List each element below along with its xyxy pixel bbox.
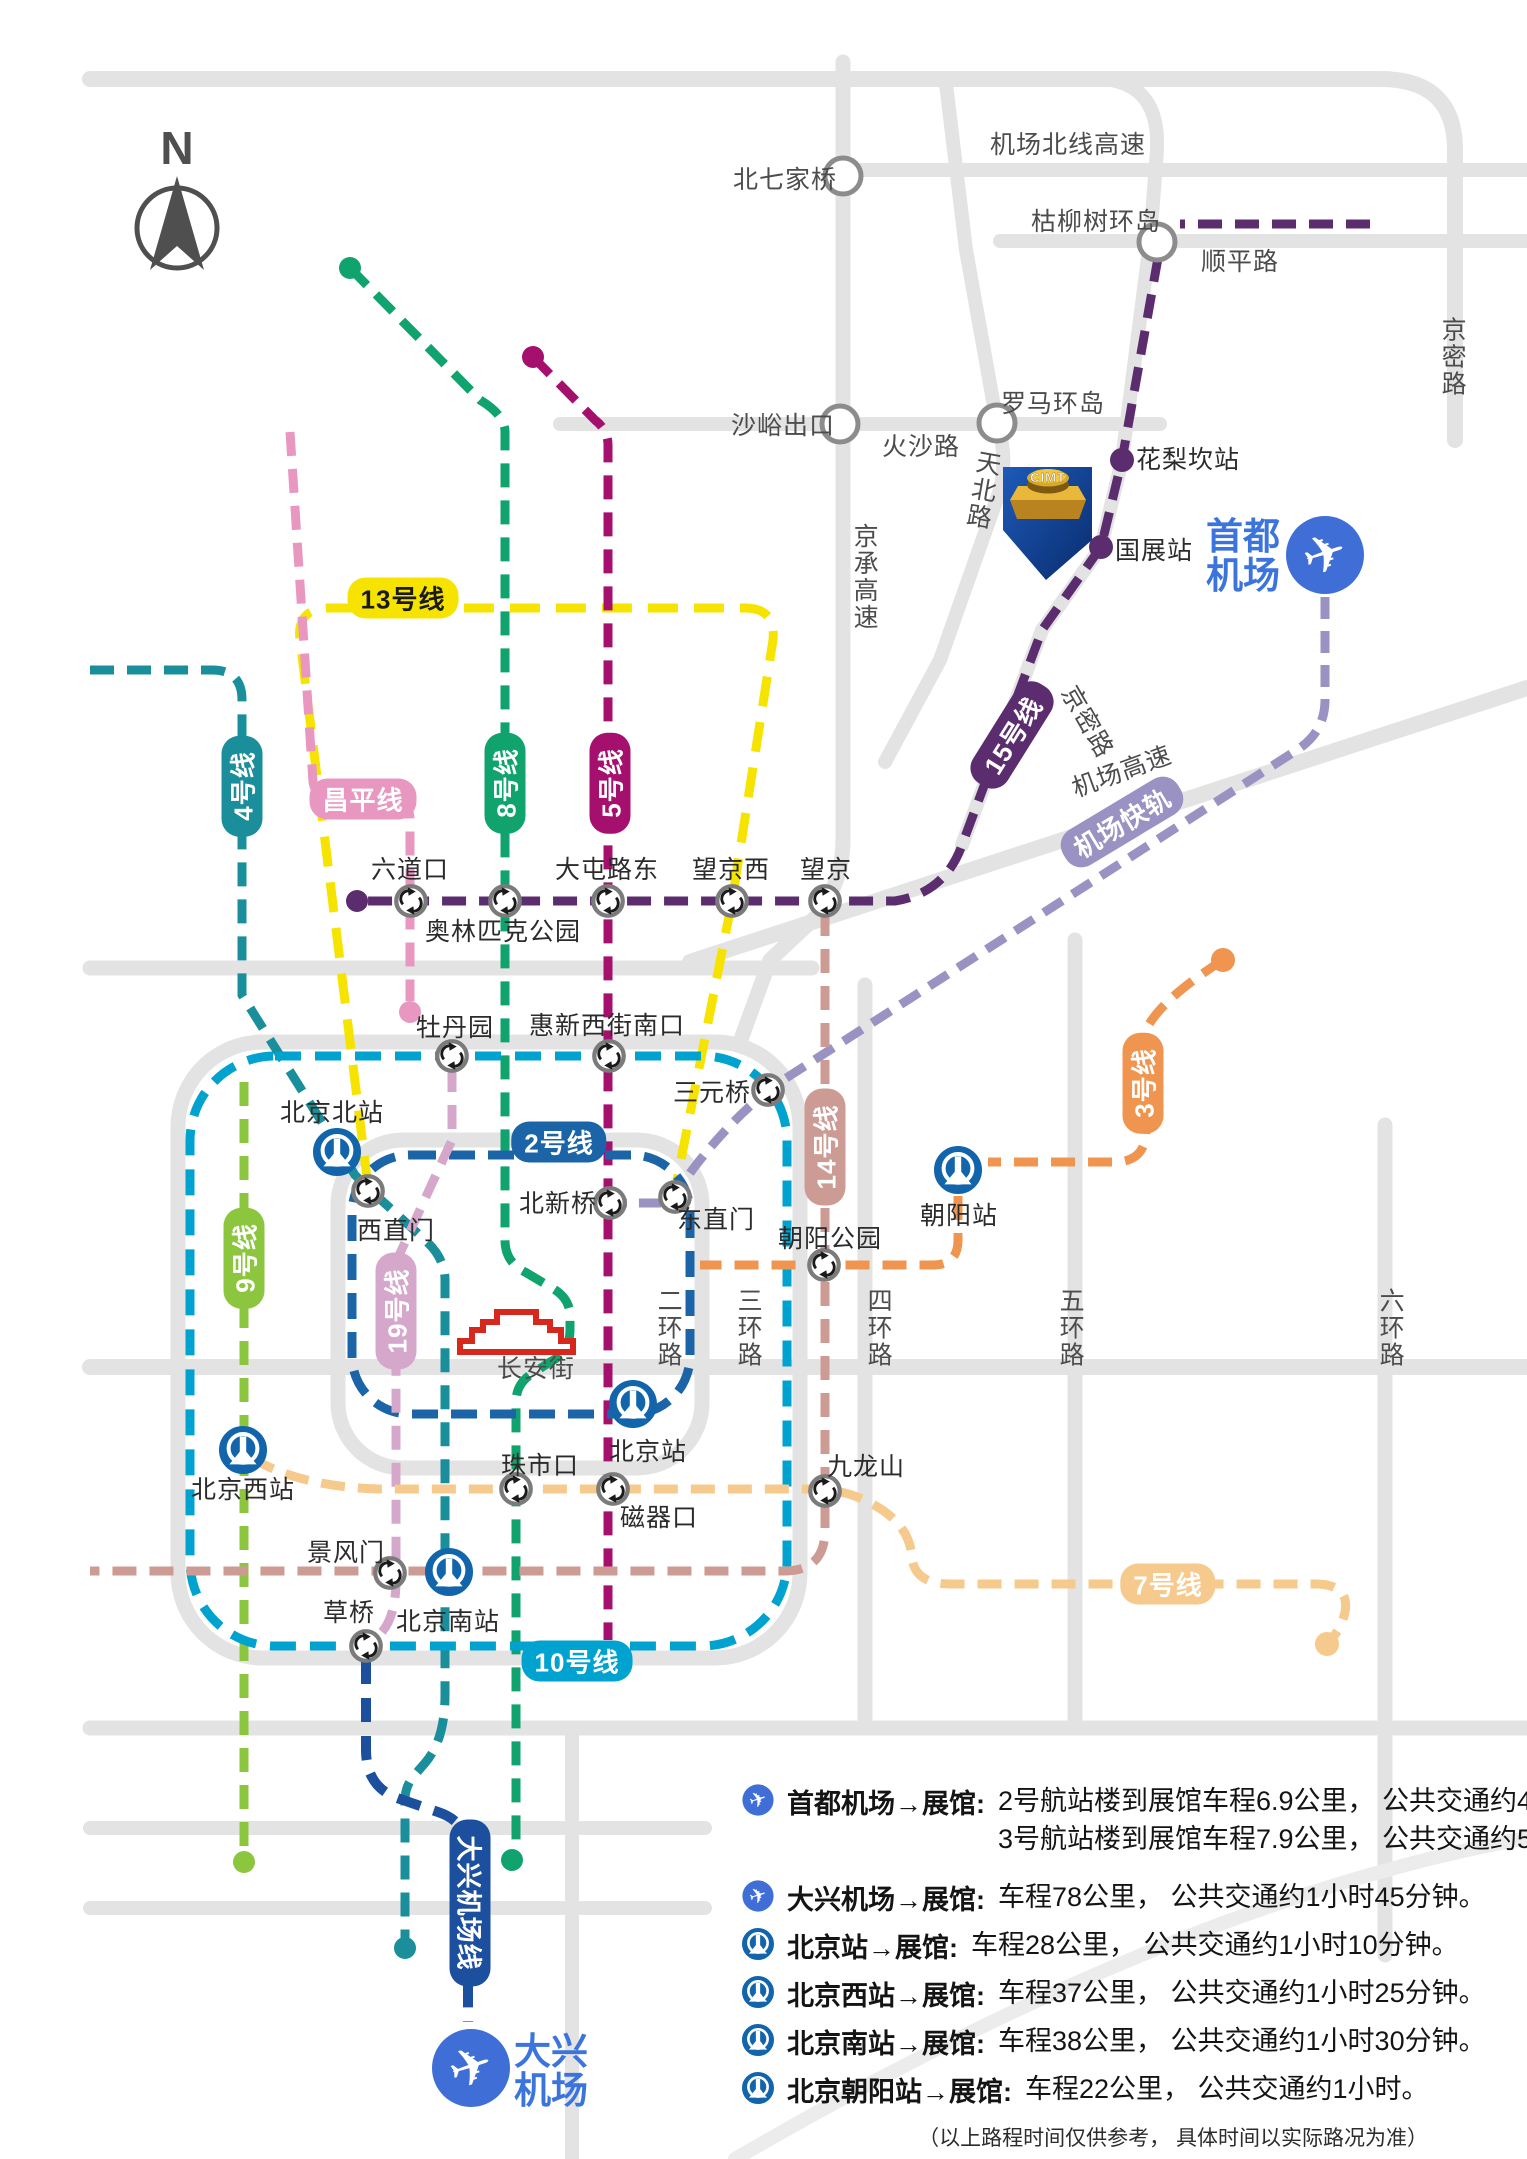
station-label-huixinxijie: 惠新西街南口 (529, 1013, 685, 1039)
station-label-sanyuanqiao: 三元桥 (673, 1080, 751, 1106)
cimt-landmark: CIMT (1003, 467, 1092, 580)
legend-row-beijing-station: 北京站→展馆: 车程28公里， 公共交通约1小时10分钟。 (742, 1926, 1459, 1965)
station-label-beijingxi: 北京西站 (191, 1477, 295, 1503)
line5-north-dot (522, 346, 544, 368)
line-terminus-dots (233, 257, 1339, 1959)
station-label-liudaokou: 六道口 (371, 857, 449, 883)
line-pill-7: 7号线 (1120, 1564, 1215, 1605)
line-pill-5: 5号线 (590, 732, 631, 833)
legend-desc: 2号航站楼到展馆车程6.9公里， 公共交通约45分钟。 3号航站楼到展馆车程7.… (998, 1782, 1527, 1859)
rail-icon (742, 2024, 774, 2056)
legend-row-beijingnan-station: 北京南站→展馆: 车程38公里， 公共交通约1小时30分钟。 (742, 2022, 1486, 2061)
station-label-beijingnan: 北京南站 (396, 1609, 500, 1635)
road-label-airport-north-expwy: 机场北线高速 (990, 132, 1146, 158)
station-label-jingfengmen: 景风门 (307, 1540, 385, 1566)
daxing-airport-name: 大兴 机场 (514, 2032, 588, 2110)
daxing-airport-name-line1: 大兴 (514, 2032, 588, 2071)
road-label-ring3: 三环路 (735, 1288, 761, 1369)
legend-desc: 车程37公里， 公共交通约1小时25分钟。 (998, 1974, 1486, 2012)
capital-airport-icon (1286, 516, 1364, 594)
station-label-olympic: 奥林匹克公园 (425, 919, 581, 945)
transfer-icon-xizhimen (353, 1176, 382, 1205)
tiananmen-icon (460, 1312, 573, 1352)
rail-icon (742, 2072, 774, 2104)
daxing-airport-name-line2: 机场 (514, 2071, 588, 2110)
rail-icon-beijing (610, 1381, 656, 1427)
line-pill-4: 4号线 (222, 735, 263, 836)
legend-desc: 车程22公里， 公共交通约1小时。 (1025, 2070, 1429, 2108)
transfer-icon-ciqikou (598, 1474, 627, 1503)
capital-airport-name-line1: 首都 (1206, 517, 1280, 556)
road-label-shayu: 沙峪出口 (731, 413, 835, 439)
transfer-icon-olympic-park (490, 886, 519, 915)
line8-south-dot (501, 1849, 523, 1871)
station-label-zhushikou: 珠市口 (501, 1453, 579, 1479)
station-dot-hualikan (1110, 448, 1134, 472)
capital-airport-name-line2: 机场 (1206, 556, 1280, 595)
transfer-icon-beixinqiao (595, 1188, 624, 1217)
compass-n-letter: N (160, 121, 193, 175)
road-label-kuliushu: 枯柳树环岛 (1031, 209, 1161, 235)
cimt-logo-text: CIMT (1030, 470, 1066, 485)
legend-row-chaoyang-station: 北京朝阳站→展馆: 车程22公里， 公共交通约1小时。 (742, 2070, 1429, 2109)
cimt-base-front (1010, 500, 1086, 519)
legend-row-capital-airport: 首都机场→展馆: 2号航站楼到展馆车程6.9公里， 公共交通约45分钟。 3号航… (742, 1782, 1527, 1859)
road-label-beiqijiaqiao: 北七家桥 (733, 167, 837, 193)
line8-north-dot (339, 257, 361, 279)
transfer-icon-huixinxijie (594, 1041, 623, 1070)
rail-icon-beijingbei (314, 1129, 360, 1175)
plane-icon (742, 1880, 774, 1912)
line15-end-dot (346, 890, 368, 912)
legend-name: 北京西站→展馆: (787, 1974, 985, 2013)
rail-icon-chaoyang (935, 1147, 981, 1193)
transfer-icon-wangjingxi (717, 886, 746, 915)
legend-name: 首都机场→展馆: (787, 1782, 985, 1821)
legend-desc: 车程78公里， 公共交通约1小时45分钟。 (998, 1878, 1486, 1916)
line-pill-changping: 昌平线 (309, 779, 416, 820)
station-label-datunludong: 大屯路东 (555, 857, 659, 883)
line-pill-3: 3号线 (1123, 1032, 1164, 1133)
line7-end-dot (1315, 1632, 1339, 1656)
road-label-jingmi-top: 京密路 (1439, 317, 1465, 398)
station-label-beijing: 北京站 (609, 1439, 687, 1465)
line-pill-19: 19号线 (376, 1253, 417, 1370)
road-label-shunping: 顺平路 (1201, 249, 1279, 275)
station-label-mudanyuan: 牡丹园 (416, 1015, 494, 1041)
line-5-path (533, 357, 608, 1640)
line-pill-14: 14号线 (805, 1089, 846, 1206)
road-label-ring4: 四环路 (865, 1288, 891, 1369)
station-label-chaoyang-park: 朝阳公园 (778, 1226, 882, 1252)
station-label-beijingbei: 北京北站 (280, 1100, 384, 1126)
transfer-icon-caoqiao (351, 1631, 380, 1660)
line-pill-9: 9号线 (224, 1207, 265, 1308)
station-label-jiulongshan: 九龙山 (827, 1454, 905, 1480)
legend-name: 大兴机场→展馆: (787, 1878, 985, 1917)
transfer-stations (351, 886, 839, 1660)
capital-airport-name: 首都 机场 (1206, 517, 1280, 595)
legend-footer-note: （以上路程时间仅供参考， 具体时间以实际路况为准） (918, 2122, 1428, 2152)
rail-icon (742, 1928, 774, 1960)
legend-desc: 车程28公里， 公共交通约1小时10分钟。 (971, 1926, 1459, 1964)
line-pill-8: 8号线 (485, 732, 526, 833)
station-label-guozhan: 国展站 (1115, 538, 1193, 564)
station-label-hualikan: 花梨坎站 (1136, 447, 1240, 473)
station-label-wangjingxi: 望京西 (692, 857, 770, 883)
road-label-ring5: 五环路 (1057, 1288, 1083, 1369)
plane-icon (742, 1784, 774, 1816)
station-label-chaoyang: 朝阳站 (920, 1203, 998, 1229)
transfer-icon-mudanyuan (437, 1041, 466, 1070)
legend-desc: 车程38公里， 公共交通约1小时30分钟。 (998, 2022, 1486, 2060)
line3-end-dot (1211, 948, 1235, 972)
station-label-wangjing: 望京 (800, 857, 852, 883)
transfer-icon-wangjing (810, 886, 839, 915)
legend-desc-line2: 3号航站楼到展馆车程7.9公里， 公共交通约55分钟。 (998, 1820, 1527, 1858)
station-label-ciqikou: 磁器口 (620, 1505, 698, 1531)
line-pill-10: 10号线 (522, 1641, 633, 1682)
legend-name: 北京南站→展馆: (787, 2022, 985, 2061)
line-pill-13: 13号线 (348, 578, 459, 619)
legend-row-beijingxi-station: 北京西站→展馆: 车程37公里， 公共交通约1小时25分钟。 (742, 1974, 1486, 2013)
legend-name: 北京站→展馆: (787, 1926, 958, 1965)
transfer-icon-datunludong (593, 886, 622, 915)
legend-row-daxing-airport: 大兴机场→展馆: 车程78公里， 公共交通约1小时45分钟。 (742, 1878, 1486, 1917)
transfer-icon-chaoyang-park (809, 1250, 838, 1279)
compass (137, 176, 217, 270)
station-label-dongzhimen: 东直门 (677, 1207, 755, 1233)
legend-name: 北京朝阳站→展馆: (787, 2070, 1012, 2109)
line-pill-2: 2号线 (511, 1122, 606, 1163)
rail-icon (742, 1976, 774, 2008)
transfer-icon-sanyuanqiao (753, 1075, 782, 1104)
station-label-xizhimen: 西直门 (357, 1218, 435, 1244)
station-dot-guozhan (1089, 535, 1113, 559)
line-pill-daxing: 大兴机场线 (450, 1819, 491, 1986)
road-label-ring2: 二环路 (655, 1288, 681, 1369)
station-label-beixinqiao: 北新桥 (519, 1191, 597, 1217)
road-label-luoma: 罗马环岛 (1001, 391, 1105, 417)
beijing-transit-access-map: ✈ (0, 0, 1527, 2159)
road-label-changan: 长安街 (497, 1356, 575, 1382)
daxing-airport-icon (432, 2029, 510, 2107)
rail-icon-beijingxi (220, 1427, 266, 1473)
transfer-icon-liudaokou (396, 886, 425, 915)
rail-icon-beijingnan (426, 1549, 472, 1595)
road-label-jingcheng: 京承高速 (851, 523, 877, 631)
road-label-ring6: 六环路 (1377, 1288, 1403, 1369)
station-label-caoqiao: 草桥 (323, 1600, 375, 1626)
line4-south-dot (394, 1937, 416, 1959)
line9-south-dot (233, 1851, 255, 1873)
legend-desc-line1: 2号航站楼到展馆车程6.9公里， 公共交通约45分钟。 (998, 1782, 1527, 1820)
road-label-huosha: 火沙路 (882, 434, 960, 460)
